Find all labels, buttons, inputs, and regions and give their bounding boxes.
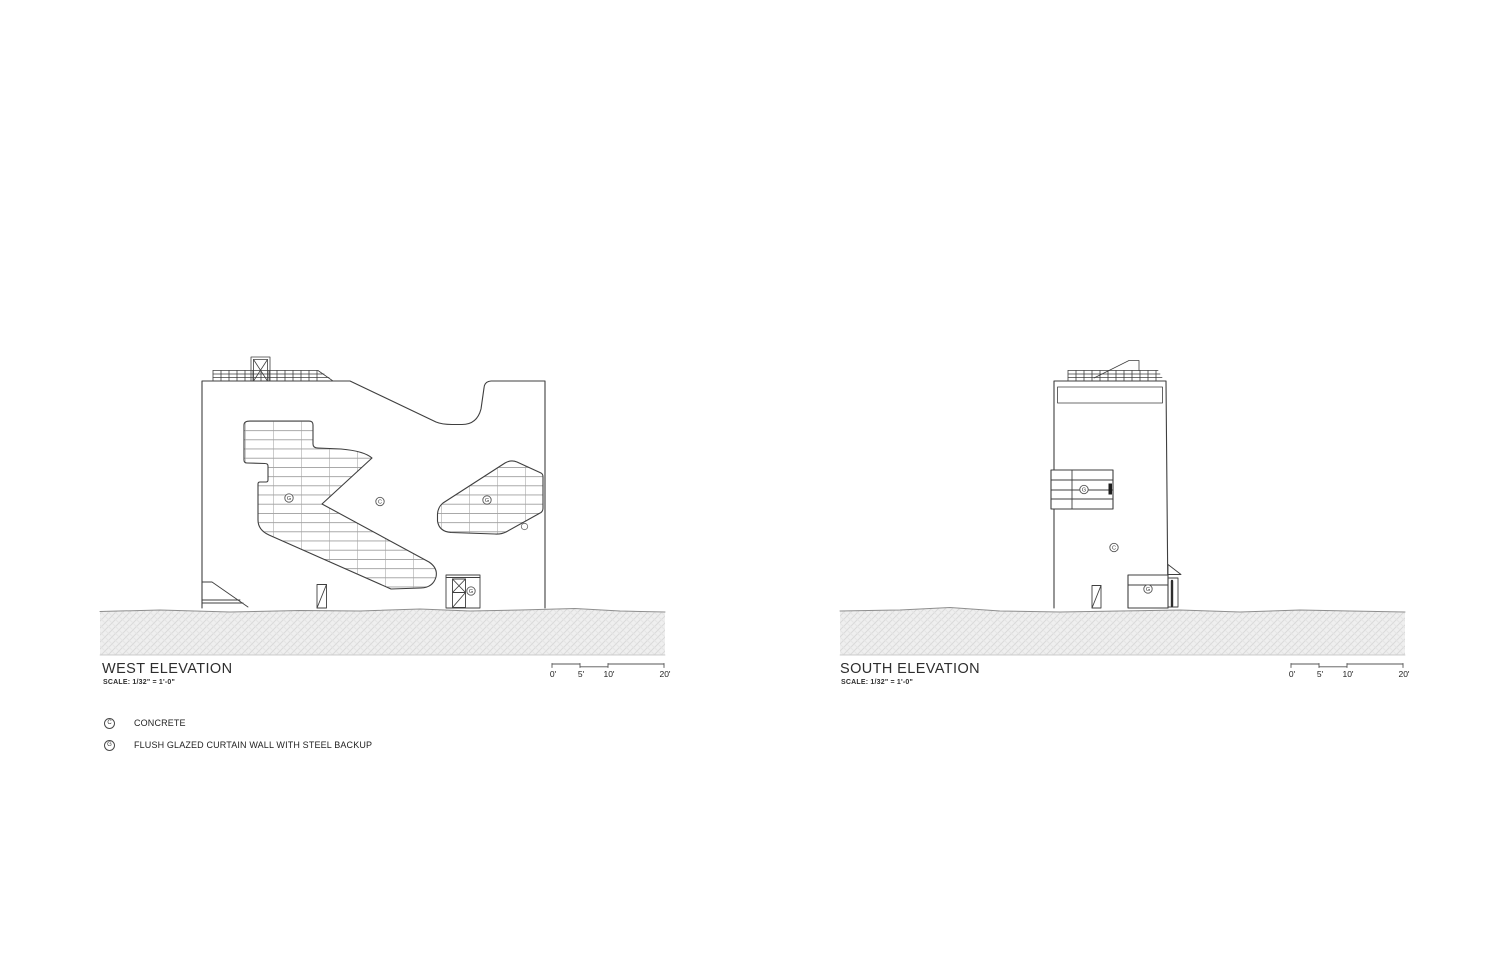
south-parapet-band <box>1058 387 1163 403</box>
scale-tick-label: 10' <box>1342 669 1353 679</box>
scale-tick-label: 0' <box>1289 669 1295 679</box>
material-tag-glazing: G <box>285 494 293 502</box>
west-glazed-panel-left <box>244 421 436 589</box>
legend-item-glazing: G FLUSH GLAZED CURTAIN WALL WITH STEEL B… <box>104 739 372 751</box>
material-tag-concrete: C <box>1110 543 1118 551</box>
legend-symbol-circle: C <box>104 718 115 729</box>
material-tag-letter: G <box>1082 488 1086 494</box>
west-elevation-drawing: G C G G <box>100 357 665 668</box>
material-tag-letter: G <box>287 496 291 502</box>
elevation-linework: G C G G <box>0 0 1500 971</box>
legend-symbol-circle: G <box>104 740 115 751</box>
legend-item-label: CONCRETE <box>134 718 186 728</box>
south-scale-bar <box>1291 664 1403 668</box>
material-tag-letter: G <box>485 498 489 504</box>
legend-item-label: FLUSH GLAZED CURTAIN WALL WITH STEEL BAC… <box>134 740 372 750</box>
west-elevation-title: WEST ELEVATION <box>102 661 233 677</box>
material-tag-glazing: G <box>483 496 491 504</box>
south-elevation-drawing: G C G <box>840 361 1405 668</box>
south-elevation-title: SOUTH ELEVATION <box>840 661 980 677</box>
scale-tick-label: 0' <box>550 669 556 679</box>
south-elevation-scale-note: SCALE: 1/32" = 1'-0" <box>841 679 913 686</box>
material-tag-glazing: G <box>467 587 475 595</box>
west-elevation-scale-note: SCALE: 1/32" = 1'-0" <box>103 679 175 686</box>
drawing-sheet: G C G G <box>0 0 1500 971</box>
west-roof-screen <box>213 357 333 381</box>
south-base-door <box>1092 586 1101 609</box>
material-tag-letter: G <box>1146 587 1150 593</box>
west-wall-circle-detail <box>521 523 527 529</box>
material-tag-letter: C <box>1112 546 1116 552</box>
south-canopy-flag <box>1168 565 1181 576</box>
scale-tick-label: 5' <box>578 669 584 679</box>
south-roof-screen <box>1068 361 1162 382</box>
material-tag-glazing: G <box>1080 485 1088 493</box>
scale-tick-label: 10' <box>603 669 614 679</box>
west-ground-hatch <box>100 609 665 656</box>
material-tag-concrete: C <box>376 497 384 505</box>
south-ground-hatch <box>840 608 1405 656</box>
material-tag-glazing: G <box>1144 585 1152 593</box>
west-base-ramp <box>202 582 248 607</box>
west-scale-bar <box>552 664 664 668</box>
scale-tick-label: 5' <box>1317 669 1323 679</box>
west-center-door <box>317 585 327 609</box>
scale-tick-label: 20' <box>659 669 670 679</box>
south-glazed-box-lower <box>1128 565 1181 609</box>
legend-item-concrete: C CONCRETE <box>104 717 186 729</box>
scale-tick-label: 20' <box>1398 669 1409 679</box>
material-tag-letter: G <box>469 589 473 595</box>
material-tag-letter: C <box>378 500 382 506</box>
